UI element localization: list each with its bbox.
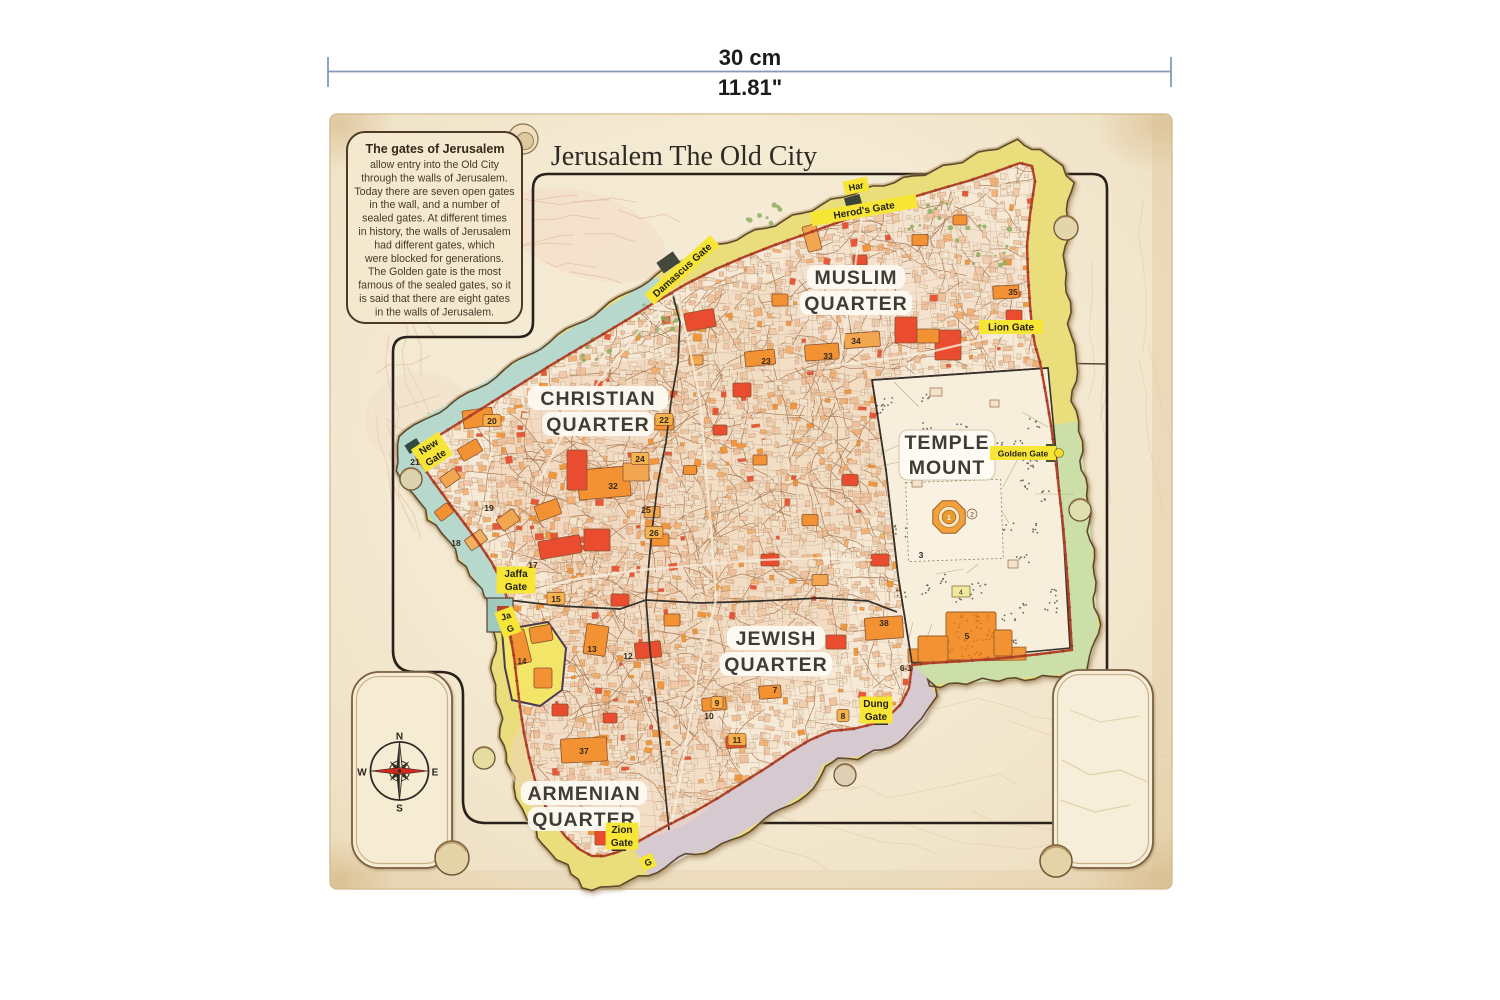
svg-text:18: 18 [451, 538, 461, 548]
svg-text:MOUNT: MOUNT [909, 457, 986, 479]
svg-text:5: 5 [965, 631, 970, 641]
svg-text:6-1: 6-1 [900, 663, 913, 673]
svg-text:The Golden gate is the most: The Golden gate is the most [368, 266, 501, 278]
svg-text:19: 19 [484, 503, 494, 513]
svg-text:4: 4 [959, 590, 963, 597]
svg-text:11.81": 11.81" [718, 75, 782, 100]
svg-text:14: 14 [518, 657, 527, 666]
svg-text:QUARTER: QUARTER [804, 293, 907, 315]
svg-text:21: 21 [410, 457, 420, 467]
svg-text:is said that there are eight g: is said that there are eight gates [359, 293, 510, 305]
svg-text:TEMPLE: TEMPLE [904, 432, 989, 454]
svg-text:had different gates, which: had different gates, which [374, 239, 495, 251]
svg-text:in the wall, and a number of: in the wall, and a number of [369, 199, 499, 211]
svg-text:Lion Gate: Lion Gate [988, 323, 1035, 334]
svg-text:17: 17 [528, 560, 538, 570]
svg-text:9: 9 [715, 698, 720, 708]
svg-text:QUARTER: QUARTER [724, 654, 827, 676]
svg-text:allow entry into the Old City: allow entry into the Old City [370, 159, 500, 171]
svg-text:8: 8 [841, 711, 846, 721]
svg-text:Golden Gate: Golden Gate [998, 449, 1049, 459]
svg-text:Gate: Gate [865, 712, 888, 723]
svg-text:32: 32 [608, 481, 618, 491]
svg-text:37: 37 [579, 746, 589, 756]
svg-text:The gates of Jerusalem: The gates of Jerusalem [366, 142, 505, 156]
svg-text:in history, the walls of Jerus: in history, the walls of Jerusalem [358, 226, 510, 238]
svg-text:MUSLIM: MUSLIM [815, 267, 898, 289]
svg-text:sealed gates. At different tim: sealed gates. At different times [362, 213, 507, 225]
svg-text:Gate: Gate [505, 582, 528, 593]
svg-text:2: 2 [970, 512, 974, 519]
svg-text:25: 25 [641, 505, 651, 515]
svg-text:QUARTER: QUARTER [546, 414, 649, 436]
svg-text:Dung: Dung [863, 699, 889, 710]
svg-text:15: 15 [551, 594, 561, 604]
svg-text:22: 22 [659, 415, 669, 425]
svg-text:ARMENIAN: ARMENIAN [527, 783, 640, 805]
svg-text:S: S [396, 804, 403, 815]
svg-text:CHRISTIAN: CHRISTIAN [540, 388, 655, 410]
svg-text:23: 23 [761, 356, 771, 366]
svg-text:were blocked for generations.: were blocked for generations. [364, 253, 504, 265]
svg-text:Gate: Gate [611, 838, 634, 849]
svg-text:W: W [357, 768, 367, 779]
svg-text:famous of the sealed gates, so: famous of the sealed gates, so it [358, 280, 511, 292]
svg-text:3: 3 [919, 550, 924, 560]
svg-text:7: 7 [773, 685, 778, 695]
svg-text:in the walls of Jerusalem.: in the walls of Jerusalem. [375, 306, 494, 318]
svg-text:34: 34 [851, 336, 861, 346]
svg-text:Today there are seven open gat: Today there are seven open gates [354, 186, 514, 198]
svg-text:30 cm: 30 cm [719, 45, 781, 70]
svg-text:JEWISH: JEWISH [736, 628, 817, 650]
svg-text:13: 13 [587, 644, 597, 654]
svg-text:12: 12 [623, 651, 633, 661]
svg-text:through the walls of Jerusalem: through the walls of Jerusalem. [361, 172, 508, 184]
svg-text:Zion: Zion [611, 825, 632, 836]
svg-text:Jerusalem The Old City: Jerusalem The Old City [551, 141, 817, 172]
svg-text:20: 20 [487, 416, 497, 426]
svg-text:N: N [396, 732, 403, 743]
svg-text:10: 10 [704, 711, 714, 721]
svg-text:26: 26 [649, 528, 659, 538]
svg-text:38: 38 [879, 618, 889, 628]
svg-text:33: 33 [823, 351, 833, 361]
svg-text:E: E [432, 768, 439, 779]
svg-text:1: 1 [947, 515, 951, 522]
svg-text:11: 11 [733, 735, 742, 745]
svg-text:Jaffa: Jaffa [504, 569, 528, 580]
svg-text:24: 24 [635, 454, 645, 464]
svg-text:35: 35 [1008, 287, 1018, 297]
